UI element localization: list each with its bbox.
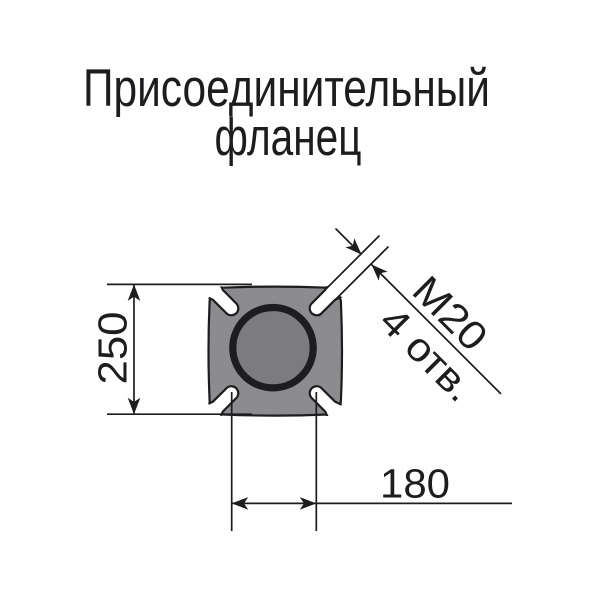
- svg-text:250: 250: [90, 312, 136, 385]
- svg-text:фланец: фланец: [215, 108, 362, 167]
- svg-text:180: 180: [380, 461, 450, 507]
